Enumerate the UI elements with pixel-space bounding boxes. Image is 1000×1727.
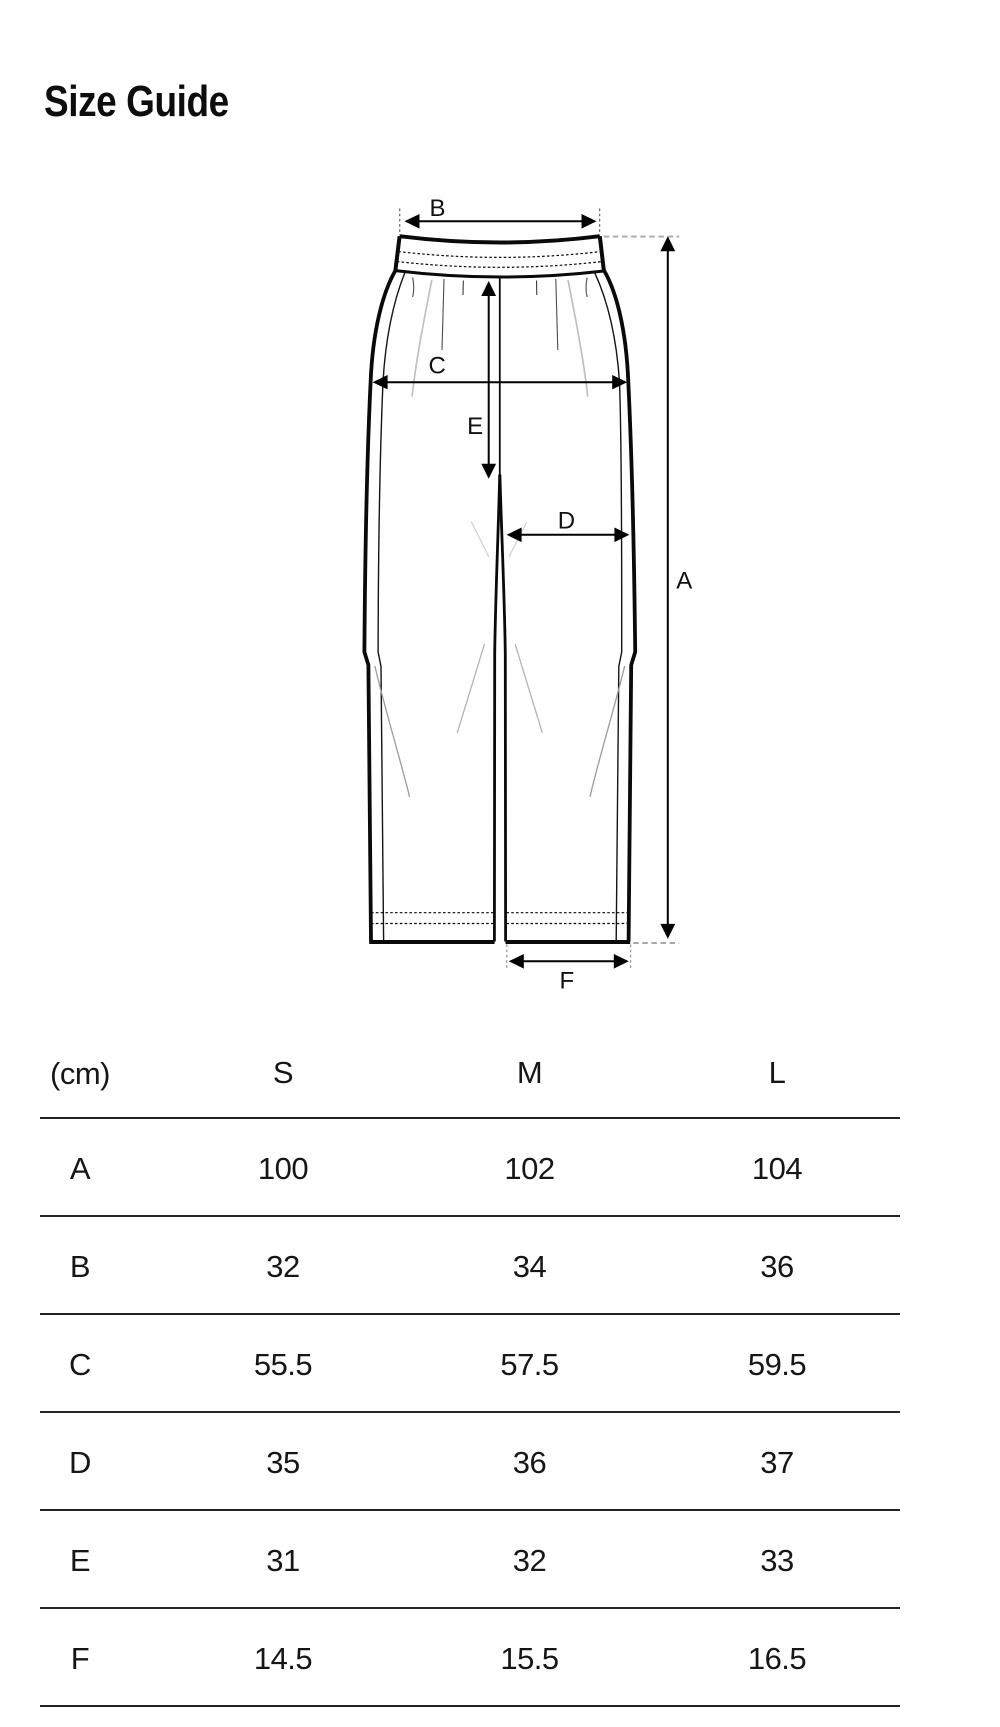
svg-text:D: D xyxy=(558,508,575,535)
svg-text:F: F xyxy=(559,968,574,995)
svg-text:B: B xyxy=(429,195,445,222)
svg-text:E: E xyxy=(467,413,483,440)
svg-text:A: A xyxy=(676,568,692,595)
svg-text:C: C xyxy=(429,353,446,380)
